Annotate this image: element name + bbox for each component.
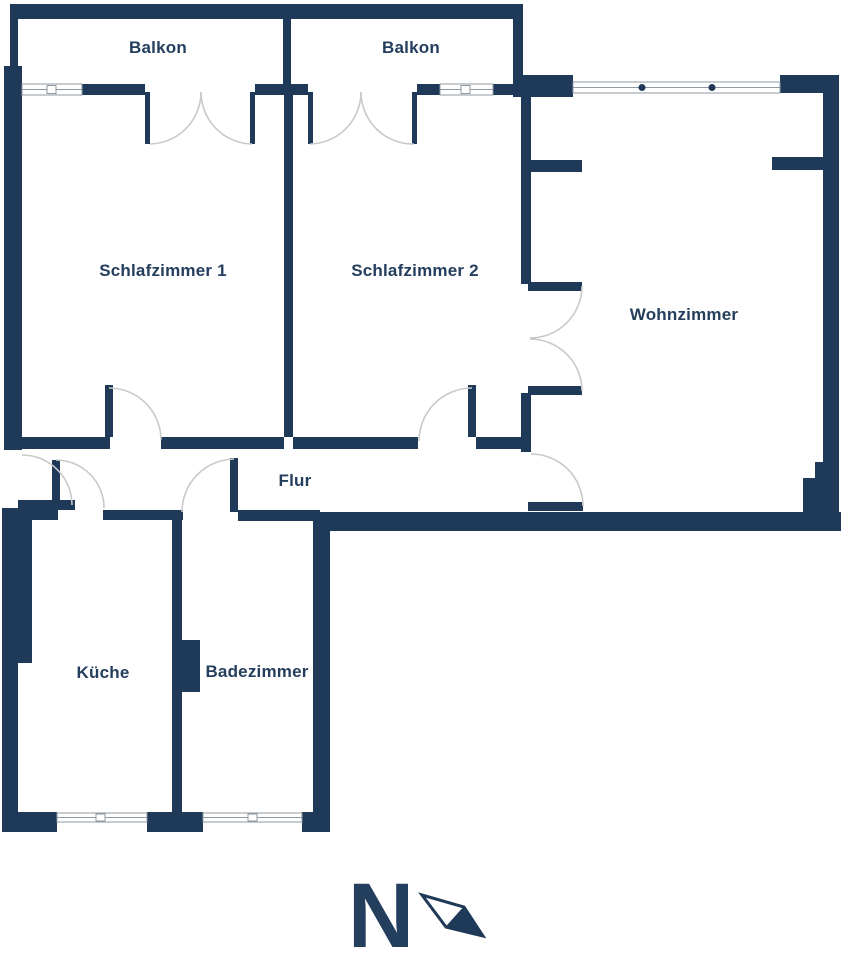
door-leaf-balcony2 bbox=[412, 92, 417, 144]
door-leaf-flur-livingroom bbox=[528, 502, 583, 511]
room-label-balkon-2: Balkon bbox=[382, 38, 440, 58]
door-arc-bedroom1 bbox=[109, 388, 161, 440]
window-kitchen-south bbox=[57, 813, 147, 822]
wall-stub-left bbox=[531, 160, 582, 172]
door-arc-doubledoor-lower bbox=[530, 339, 582, 391]
door-arc-balcony2-right bbox=[361, 92, 414, 144]
wall-south-east bbox=[313, 512, 841, 531]
window-livingroom-north bbox=[573, 82, 780, 93]
door-leaf-bedroom2 bbox=[468, 385, 476, 437]
door-arc-balcony2-left bbox=[310, 92, 361, 144]
compass-north-label: N bbox=[348, 870, 414, 960]
door-arc-bathroom bbox=[182, 459, 234, 512]
room-label-schlafzimmer-1: Schlafzimmer 1 bbox=[99, 261, 227, 281]
door-arc-bedroom2 bbox=[419, 388, 472, 441]
room-label-badezimmer: Badezimmer bbox=[205, 662, 308, 682]
room-label-kueche: Küche bbox=[77, 663, 130, 683]
wall-livingroom-left bbox=[521, 393, 531, 452]
room-label-wohnzimmer: Wohnzimmer bbox=[630, 305, 738, 325]
wall-flur-top bbox=[293, 437, 418, 449]
wall-stub-right bbox=[772, 157, 823, 170]
wall-south-middle bbox=[147, 812, 203, 832]
room-label-schlafzimmer-2: Schlafzimmer 2 bbox=[351, 261, 479, 281]
wall-flur-top bbox=[161, 437, 284, 449]
door-leaf-bathroom bbox=[230, 458, 238, 512]
door-leaf-doubledoor-upper bbox=[528, 282, 582, 291]
wall-livingroom-left bbox=[521, 97, 531, 284]
wall-shaft-block bbox=[182, 640, 200, 692]
wall-flur-top bbox=[476, 437, 523, 449]
floor-plan-drawing bbox=[0, 0, 844, 960]
wall-balcony-divider bbox=[283, 4, 291, 94]
door-leaf-bedroom1 bbox=[105, 385, 113, 437]
door-arc-balcony1-right bbox=[201, 92, 252, 144]
windows bbox=[22, 82, 780, 822]
walls bbox=[2, 4, 841, 832]
wall-bathroom-right bbox=[313, 521, 330, 832]
wall-south-corner-left bbox=[2, 812, 57, 832]
wall-balcony-top bbox=[10, 4, 523, 19]
wall-kitchen-left-thick bbox=[2, 508, 32, 663]
floor-plan-page: Balkon Balkon Schlafzimmer 1 Schlafzimme… bbox=[0, 0, 844, 960]
wall-flur-bottom bbox=[103, 510, 183, 520]
door-leaf-balcony1 bbox=[250, 92, 255, 144]
wall-north-seg bbox=[82, 84, 145, 95]
room-label-balkon-1: Balkon bbox=[129, 38, 187, 58]
window-bedroom2-north bbox=[440, 84, 493, 95]
wall-flur-top bbox=[18, 437, 110, 449]
wall-balcony-left bbox=[10, 4, 18, 68]
wall-kitchen-bath-divider bbox=[172, 510, 182, 812]
wall-kitchen-left bbox=[2, 663, 18, 832]
wall-flur-bottom bbox=[238, 510, 320, 521]
door-leaf-balcony2 bbox=[308, 92, 313, 144]
window-bedroom1-north bbox=[22, 84, 82, 95]
wall-north-seg bbox=[417, 84, 440, 95]
door-leaf-balcony1 bbox=[145, 92, 150, 144]
wall-north-seg bbox=[255, 84, 308, 95]
room-label-flur: Flur bbox=[279, 471, 312, 491]
door-arc-entrance bbox=[22, 455, 72, 505]
wall-exterior-right bbox=[823, 75, 839, 531]
wall-bedroom-divider bbox=[284, 95, 293, 437]
window-bathroom-south bbox=[203, 813, 302, 822]
compass-needle-icon bbox=[422, 895, 483, 936]
wall-livingroom-topleft bbox=[523, 75, 573, 97]
door-leaf-doubledoor-lower bbox=[528, 386, 582, 395]
door-arc-doubledoor-upper bbox=[530, 286, 582, 338]
wall-right-step bbox=[803, 478, 817, 512]
door-arc-balcony1-left bbox=[150, 92, 201, 144]
wall-balcony-right bbox=[513, 4, 523, 97]
door-arc-flur-livingroom bbox=[531, 454, 583, 506]
wall-exterior-left bbox=[4, 66, 22, 450]
